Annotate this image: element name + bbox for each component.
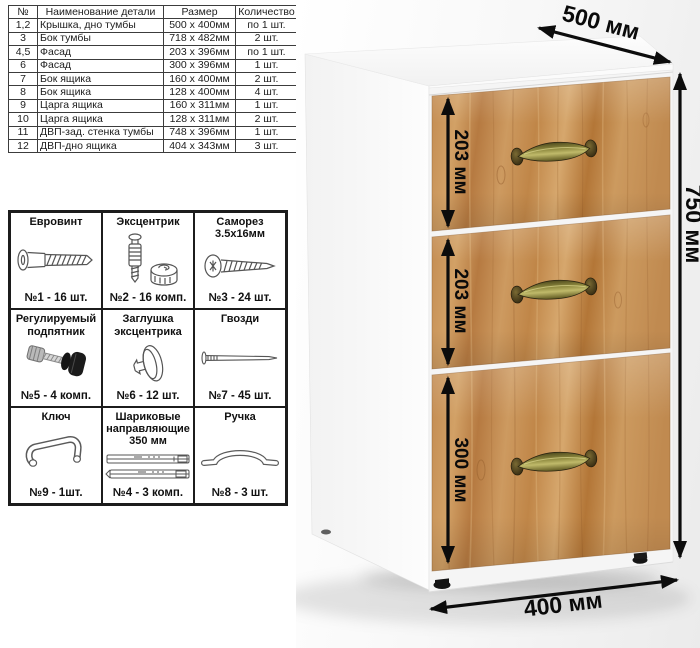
euro-screw-icon — [15, 228, 97, 292]
table-row: 9 Царга ящика 160 x 311мм 1 шт. — [9, 99, 298, 112]
dimension-drawer-top-label: 203 мм — [450, 129, 471, 194]
part-name: Бок ящика — [38, 86, 164, 99]
hardware-title: Ключ — [41, 411, 70, 423]
self-tapping-screw-icon — [201, 241, 279, 293]
hardware-cell-gvozdi: Гвозди №7 - 45 шт. — [194, 309, 286, 406]
cam-lock-icon — [115, 228, 181, 292]
part-num: 10 — [9, 113, 38, 126]
part-num: 3 — [9, 32, 38, 45]
part-qty: 3 шт. — [236, 139, 298, 152]
part-size: 128 x 400мм — [164, 86, 236, 99]
hardware-count: №4 - 3 комп. — [113, 487, 183, 499]
table-row: 6 Фасад 300 x 396мм 1 шт. — [9, 59, 298, 72]
header-qty: Количество — [236, 6, 298, 19]
part-qty: 1 шт. — [236, 99, 298, 112]
part-qty: 2 шт. — [236, 113, 298, 126]
hardware-title: Шариковые направляющие 350 мм — [105, 411, 191, 448]
hardware-count: №9 - 1шт. — [29, 487, 82, 499]
part-qty: 2 шт. — [236, 72, 298, 85]
hardware-cell-napravlyayushchie: Шариковые направляющие 350 мм №4 - 3 ком… — [102, 407, 194, 504]
table-row: 1,2 Крышка, дно тумбы 500 x 400мм по 1 ш… — [9, 19, 298, 32]
part-name: ДВП-дно ящика — [38, 139, 164, 152]
table-row: 7 Бок ящика 160 x 400мм 2 шт. — [9, 72, 298, 85]
hardware-cell-excentric: Эксцентрик №2 - 16 комп. — [102, 212, 194, 309]
part-size: 128 x 311мм — [164, 113, 236, 126]
assembly-spec-sheet: № Наименование детали Размер Количество … — [0, 0, 700, 648]
header-name: Наименование детали — [38, 6, 164, 19]
part-name: Царга ящика — [38, 113, 164, 126]
part-num: 11 — [9, 126, 38, 139]
dimension-height-label: 750 мм — [681, 185, 700, 264]
ball-slides-icon — [104, 448, 192, 487]
hardware-title: Эксцентрик — [116, 216, 179, 228]
table-row: 4,5 Фасад 203 x 396мм по 1 шт. — [9, 46, 298, 59]
cabinet-illustration: 500 мм 750 мм 400 мм 203 мм 203 мм 300 м… — [296, 0, 700, 648]
hardware-count: №6 - 12 шт. — [117, 390, 180, 402]
part-name: Крышка, дно тумбы — [38, 19, 164, 32]
part-size: 404 x 343мм — [164, 139, 236, 152]
hardware-cell-ruchka: Ручка №8 - 3 шт. — [194, 407, 286, 504]
parts-table: № Наименование детали Размер Количество … — [8, 5, 298, 153]
part-qty: 1 шт. — [236, 126, 298, 139]
part-num: 9 — [9, 99, 38, 112]
part-qty: 4 шт. — [236, 86, 298, 99]
hardware-title: Регулируемый подпятник — [13, 313, 99, 338]
dimension-drawer-bottom-label: 300 мм — [450, 437, 471, 502]
hardware-title: Евровинт — [29, 216, 82, 228]
part-name: Царга ящика — [38, 99, 164, 112]
part-qty: по 1 шт. — [236, 46, 298, 59]
hardware-cell-eurovint: Евровинт №1 - 16 шт. — [10, 212, 102, 309]
cam-cover-icon — [126, 338, 170, 390]
cabinet-photo-area: 500 мм 750 мм 400 мм 203 мм 203 мм 300 м… — [296, 0, 700, 648]
part-size: 500 x 400мм — [164, 19, 236, 32]
part-num: 8 — [9, 86, 38, 99]
hardware-title: Саморез 3.5x16мм — [197, 216, 283, 241]
adjustable-foot-icon — [24, 338, 88, 390]
part-num: 12 — [9, 139, 38, 152]
dimension-drawer-middle-label: 203 мм — [450, 268, 471, 333]
hardware-count: №8 - 3 шт. — [212, 487, 268, 499]
part-size: 748 x 396мм — [164, 126, 236, 139]
hex-key-icon — [23, 423, 89, 487]
parts-table-header-row: № Наименование детали Размер Количество — [9, 6, 298, 19]
hardware-title: Гвозди — [221, 313, 259, 325]
part-size: 160 x 311мм — [164, 99, 236, 112]
nail-icon — [199, 326, 281, 390]
hardware-count: №5 - 4 комп. — [21, 390, 91, 402]
part-num: 7 — [9, 72, 38, 85]
hardware-cell-samorez: Саморез 3.5x16мм №3 - 24 шт. — [194, 212, 286, 309]
hardware-count: №1 - 16 шт. — [25, 292, 88, 304]
part-size: 718 x 482мм — [164, 32, 236, 45]
hardware-cell-foot: Регулируемый подпятник №5 - 4 комп. — [10, 309, 102, 406]
hardware-grid: Евровинт №1 - 16 шт. Эксцентрик — [8, 210, 288, 506]
part-qty: по 1 шт. — [236, 19, 298, 32]
header-num: № — [9, 6, 38, 19]
part-name: Бок ящика — [38, 72, 164, 85]
part-qty: 1 шт. — [236, 59, 298, 72]
part-num: 6 — [9, 59, 38, 72]
hardware-cell-zaglushka: Заглушка эксцентрика №6 - 12 шт. — [102, 309, 194, 406]
table-row: 3 Бок тумбы 718 x 482мм 2 шт. — [9, 32, 298, 45]
table-row: 11 ДВП-зад. стенка тумбы 748 x 396мм 1 ш… — [9, 126, 298, 139]
bow-handle-icon — [199, 423, 281, 487]
hardware-count: №3 - 24 шт. — [209, 292, 272, 304]
table-row: 8 Бок ящика 128 x 400мм 4 шт. — [9, 86, 298, 99]
header-size: Размер — [164, 6, 236, 19]
part-qty: 2 шт. — [236, 32, 298, 45]
table-row: 10 Царга ящика 128 x 311мм 2 шт. — [9, 113, 298, 126]
hardware-count: №7 - 45 шт. — [209, 390, 272, 402]
part-name: Бок тумбы — [38, 32, 164, 45]
hardware-count: №2 - 16 комп. — [110, 292, 187, 304]
part-num: 4,5 — [9, 46, 38, 59]
part-num: 1,2 — [9, 19, 38, 32]
table-row: 12 ДВП-дно ящика 404 x 343мм 3 шт. — [9, 139, 298, 152]
part-size: 203 x 396мм — [164, 46, 236, 59]
part-size: 300 x 396мм — [164, 59, 236, 72]
hardware-title: Заглушка эксцентрика — [105, 313, 191, 338]
cabinet-side-panel — [305, 54, 429, 590]
part-name: ДВП-зад. стенка тумбы — [38, 126, 164, 139]
part-name: Фасад — [38, 46, 164, 59]
part-size: 160 x 400мм — [164, 72, 236, 85]
hardware-cell-klyuch: Ключ №9 - 1шт. — [10, 407, 102, 504]
part-name: Фасад — [38, 59, 164, 72]
hardware-title: Ручка — [224, 411, 255, 423]
